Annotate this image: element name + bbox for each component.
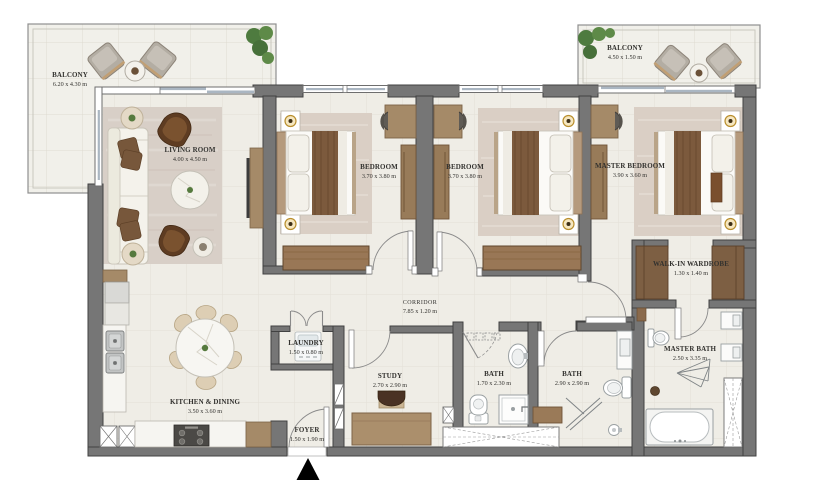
svg-text:STUDY: STUDY bbox=[378, 372, 402, 380]
svg-text:1.30 x 1.40 m: 1.30 x 1.40 m bbox=[674, 270, 708, 277]
svg-text:2.90 x 2.90 m: 2.90 x 2.90 m bbox=[555, 380, 589, 387]
svg-text:1.50 x 0.80 m: 1.50 x 0.80 m bbox=[289, 349, 323, 356]
svg-text:6.20 x 4.30 m: 6.20 x 4.30 m bbox=[53, 81, 87, 88]
svg-text:3.50 x 3.60 m: 3.50 x 3.60 m bbox=[188, 408, 222, 415]
svg-text:BEDROOM: BEDROOM bbox=[360, 163, 398, 171]
svg-text:1.50 x 1.90 m: 1.50 x 1.90 m bbox=[290, 436, 324, 443]
svg-text:MASTER BEDROOM: MASTER BEDROOM bbox=[595, 162, 665, 170]
svg-text:LAUNDRY: LAUNDRY bbox=[288, 339, 323, 347]
svg-text:BALCONY: BALCONY bbox=[607, 44, 643, 52]
svg-text:KITCHEN & DINING: KITCHEN & DINING bbox=[170, 398, 241, 406]
svg-text:LIVING ROOM: LIVING ROOM bbox=[164, 146, 215, 154]
svg-text:4.00 x 4.50 m: 4.00 x 4.50 m bbox=[173, 156, 207, 163]
svg-text:7.85 x 1.20 m: 7.85 x 1.20 m bbox=[403, 308, 437, 315]
svg-text:2.70 x 2.90 m: 2.70 x 2.90 m bbox=[373, 382, 407, 389]
svg-text:WALK-IN WARDROBE: WALK-IN WARDROBE bbox=[653, 260, 729, 268]
svg-text:BEDROOM: BEDROOM bbox=[446, 163, 484, 171]
svg-text:BATH: BATH bbox=[562, 370, 582, 378]
svg-text:MASTER BATH: MASTER BATH bbox=[664, 345, 717, 353]
svg-text:BALCONY: BALCONY bbox=[52, 71, 88, 79]
svg-text:FOYER: FOYER bbox=[295, 426, 321, 434]
svg-text:4.50 x 1.50 m: 4.50 x 1.50 m bbox=[608, 54, 642, 61]
svg-text:CORRIDOR: CORRIDOR bbox=[403, 300, 437, 306]
svg-text:2.50 x 3.35 m: 2.50 x 3.35 m bbox=[673, 355, 707, 362]
svg-text:3.70 x 3.80 m: 3.70 x 3.80 m bbox=[362, 173, 396, 180]
svg-text:3.90 x 3.60 m: 3.90 x 3.60 m bbox=[613, 172, 647, 179]
svg-text:3.70 x 3.80 m: 3.70 x 3.80 m bbox=[448, 173, 482, 180]
svg-text:BATH: BATH bbox=[484, 370, 504, 378]
svg-text:1.70 x 2.30 m: 1.70 x 2.30 m bbox=[477, 380, 511, 387]
